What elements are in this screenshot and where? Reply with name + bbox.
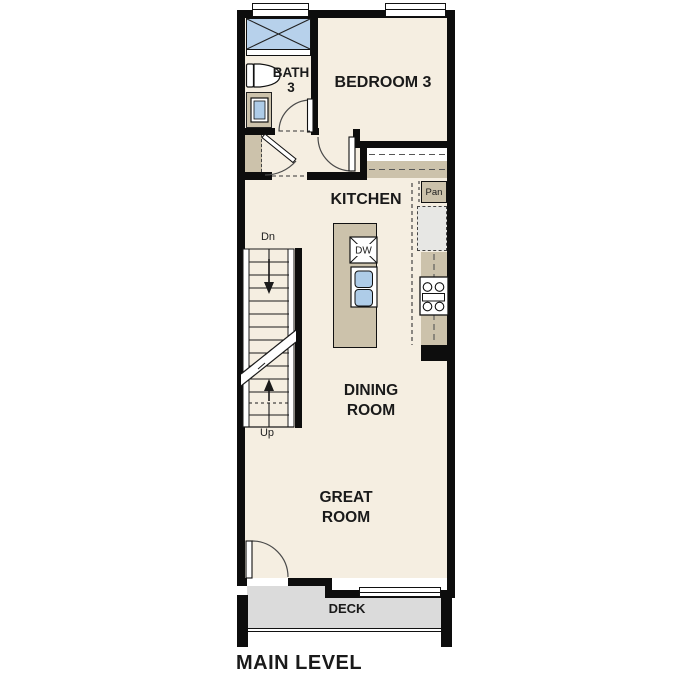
great-room-label: GREAT ROOM [296,488,396,528]
floor-plan: Pan [0,0,687,687]
bath-bottom-wall-right [311,128,319,135]
bedroom-label: BEDROOM 3 [323,74,443,92]
pantry-cabinet: Pan [421,181,447,203]
deck-label: DECK [307,601,387,616]
deck-railing [247,628,441,632]
window-shower [252,3,309,17]
kitchen-wall-counter [367,161,447,178]
window-sash-line [360,592,440,593]
upper-cabinet-strip [367,148,447,161]
range-counter [421,252,447,345]
bath-bottom-wall-left [245,128,275,135]
deck-post-left [237,595,248,647]
right-wall [447,10,455,598]
shower-front [246,49,311,56]
plan-title: MAIN LEVEL [236,652,362,675]
bath-label: BATH 3 [264,65,318,95]
shower [246,18,311,51]
bath-label-line1: BATH [273,65,310,80]
bedroom-bottom-wall [353,141,455,148]
stairs-up-label: Up [253,427,281,439]
bath-label-line2: 3 [287,80,295,95]
kitchen-label: KITCHEN [316,191,416,209]
pantry-label: Pan [426,187,443,198]
window-greatroom [359,587,441,597]
kitchen-island [333,223,377,348]
entry-closet-shelf [245,134,262,172]
dining-label: DINING ROOM [321,381,421,421]
bath-vanity [246,92,272,128]
dining-label-line2: ROOM [347,402,395,419]
stairs-right-wall [295,248,302,428]
refrigerator [417,206,447,251]
hall-bottom-wall-right [307,172,367,180]
left-wall [237,10,245,586]
great-label-line1: GREAT [319,489,372,506]
hall-bottom-wall-left [237,172,272,180]
window-sash-line [253,9,308,10]
window-sash-line [386,9,445,10]
great-label-line2: ROOM [322,509,370,526]
window-bedroom [385,3,446,17]
counter-bottom-wall [421,345,455,361]
deck-step-wall [325,578,332,598]
deck-post-right [441,595,452,647]
greatroom-bottom-wall-left [237,578,247,586]
dining-label-line1: DINING [344,382,398,399]
stairs-down-label: Dn [254,231,282,243]
